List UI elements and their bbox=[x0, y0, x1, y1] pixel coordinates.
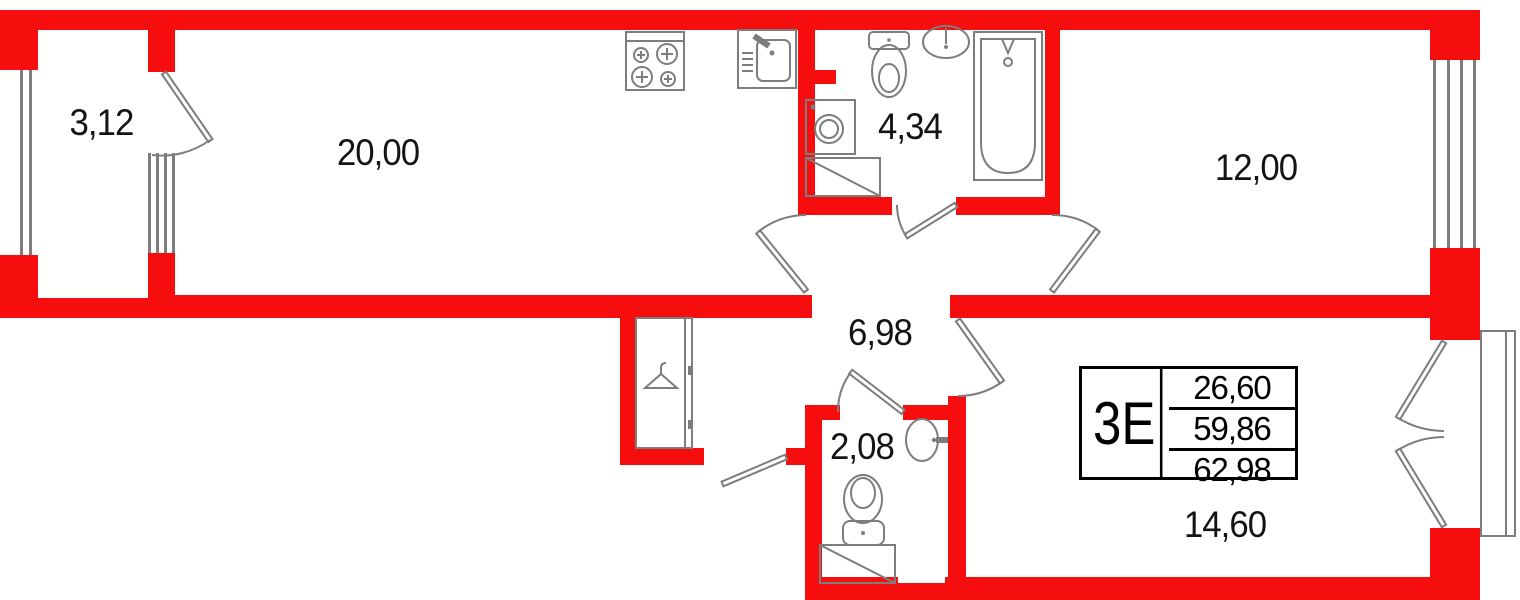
unit-info-table: 3Е 26,60 59,86 62,98 bbox=[1079, 366, 1298, 480]
appliance-space-icon bbox=[806, 158, 880, 196]
room-label-bedroom1: 12,00 bbox=[1171, 147, 1340, 189]
room-label-wc: 2,08 bbox=[815, 426, 909, 468]
wardrobe-icon bbox=[636, 318, 693, 448]
door-swing-icon bbox=[1050, 215, 1100, 293]
unit-area-row: 59,86 bbox=[1169, 407, 1295, 451]
washbasin-icon bbox=[906, 419, 948, 461]
unit-areas: 26,60 59,86 62,98 bbox=[1169, 369, 1295, 477]
balcony-outline-icon bbox=[1481, 331, 1515, 536]
door-swing-icon bbox=[1396, 341, 1446, 528]
washing-machine-icon bbox=[806, 100, 855, 154]
toilet-icon bbox=[843, 475, 884, 545]
room-label-bathroom: 4,34 bbox=[858, 106, 961, 148]
entry-door-icon bbox=[722, 455, 787, 487]
unit-area-row: 26,60 bbox=[1169, 369, 1295, 407]
door-swing-icon bbox=[756, 215, 808, 293]
room-label-kitchen-living: 20,00 bbox=[293, 132, 462, 174]
room-label-bedroom2: 14,60 bbox=[1140, 504, 1309, 546]
room-label-balcony: 3,12 bbox=[47, 102, 155, 144]
toilet-icon bbox=[869, 32, 909, 97]
bathtub-icon bbox=[974, 32, 1042, 180]
floor-plan: 3,12 20,00 4,34 12,00 6,98 2,08 14,60 3Е… bbox=[0, 0, 1520, 600]
stove-icon bbox=[626, 32, 684, 90]
hanger-icon bbox=[645, 363, 677, 388]
appliance-space-icon bbox=[820, 545, 895, 583]
door-swing-icon bbox=[152, 72, 213, 156]
unit-area-row: 62,98 bbox=[1169, 451, 1295, 489]
door-swing-icon bbox=[838, 370, 905, 414]
kitchen-sink-icon bbox=[738, 30, 796, 88]
door-swing-icon bbox=[897, 203, 957, 239]
washbasin-icon bbox=[923, 26, 969, 58]
unit-type-label: 3Е bbox=[1089, 369, 1163, 477]
room-label-hallway: 6,98 bbox=[810, 312, 951, 354]
door-swing-icon bbox=[956, 319, 1004, 396]
